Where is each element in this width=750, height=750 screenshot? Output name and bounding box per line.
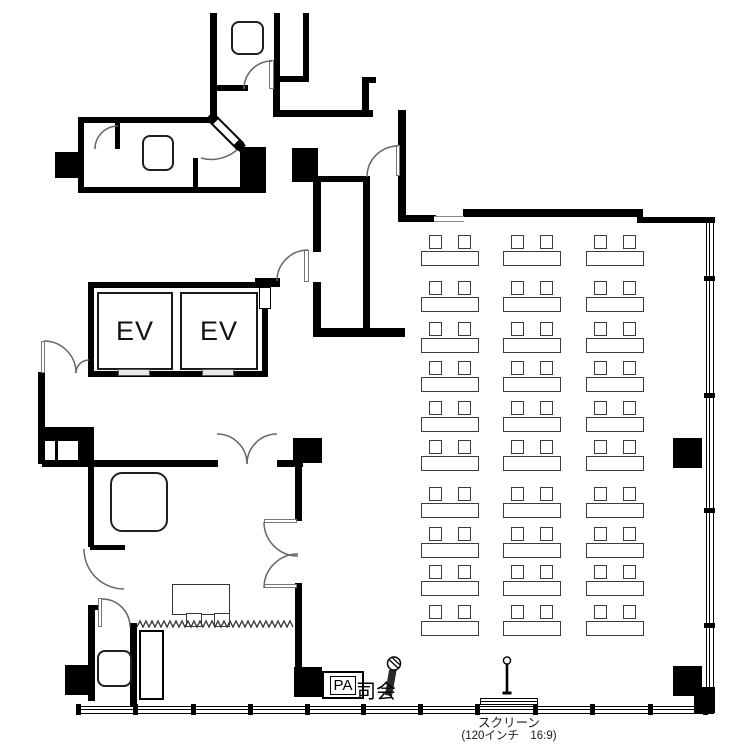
female-restroom-sign [231,21,264,55]
chair [429,401,442,415]
door-arc [367,146,398,177]
chair [511,361,524,375]
chair [458,361,471,375]
wall-segment [55,152,78,178]
chair [458,527,471,541]
door-leaf [41,341,45,373]
chair [511,605,524,619]
chair [511,322,524,336]
chair [594,281,607,295]
operator-chair [186,613,202,627]
desk [586,621,644,636]
desk [503,251,561,266]
chair [458,605,471,619]
wall-segment [363,176,370,337]
door-leaf [269,60,274,89]
desk [503,543,561,558]
moderator-label: 司会 [356,675,396,704]
wall-segment [273,110,373,117]
wall-segment [398,215,436,222]
chair [623,605,636,619]
door-leaf [396,145,400,176]
elevator-1: EV [97,292,173,370]
desk [503,377,561,392]
desk [586,581,644,596]
chair [458,281,471,295]
window-mullion [305,704,310,715]
wall-segment [88,282,268,288]
wall-segment [42,460,218,467]
mic-stand-icon [503,657,512,695]
chair [623,361,636,375]
desk [586,543,644,558]
desk [503,581,561,596]
chair [540,235,553,249]
door-arc [102,599,130,627]
chair [458,487,471,501]
wall-segment [673,438,702,468]
desk [421,377,479,392]
chair [511,527,524,541]
window-mullion [533,704,538,715]
window-mullion [475,704,480,715]
wall-segment [193,158,198,192]
door-arc [201,147,240,159]
desk [586,377,644,392]
wall-segment [215,85,248,91]
window-mullion [248,704,253,715]
desk [586,503,644,518]
chair [594,440,607,454]
chair [540,281,553,295]
chair [623,565,636,579]
chair [458,440,471,454]
chair [429,527,442,541]
wall-segment [362,77,369,116]
desk [421,543,479,558]
chair [623,235,636,249]
chair [623,322,636,336]
window-mullion [590,704,595,715]
desk [503,417,561,432]
window-mullion [704,393,715,398]
chair [540,322,553,336]
chair [623,401,636,415]
chair [540,605,553,619]
desk [586,251,644,266]
desk [503,621,561,636]
chair [429,605,442,619]
window-wall-right-midline [709,223,710,708]
wall-segment [293,438,322,463]
chair [429,322,442,336]
chair [458,565,471,579]
chair [458,322,471,336]
chair [429,487,442,501]
smoking-area-sign [97,650,132,687]
door-arc [264,554,298,588]
operator-table [172,584,230,615]
chair [511,565,524,579]
desk [586,417,644,432]
wall-segment [65,665,93,695]
elevator-2-label: EV [200,316,238,347]
wall-segment [295,467,302,521]
chair [540,440,553,454]
chair [594,361,607,375]
elevator-2: EV [180,292,258,370]
elevator-2-door [202,369,234,376]
desk [503,456,561,471]
chair [623,281,636,295]
wall-segment [90,545,125,550]
window-wall-bottom-midline [78,709,714,710]
wall-segment [88,467,94,547]
pa-label: PA [330,676,357,695]
chair [429,281,442,295]
desk [421,456,479,471]
chair [594,235,607,249]
wall-inset [45,441,55,460]
window-mullion [76,704,81,715]
door-arc [44,341,76,373]
wall-segment [313,176,321,252]
screen-spec: (120インチ 16:9) [429,730,589,743]
wall-inset [58,441,78,460]
door-leaf [98,598,102,627]
wall-segment [295,583,302,668]
wall-segment [240,147,266,193]
chair [594,322,607,336]
desk [503,338,561,353]
chair [594,401,607,415]
wall-segment [210,13,217,122]
chair [623,527,636,541]
chair [540,565,553,579]
chair [540,361,553,375]
wall-segment [274,13,280,82]
chair [429,235,442,249]
chair [429,361,442,375]
window-wall-bottom [78,706,714,714]
pilaster [259,287,271,309]
chair [511,487,524,501]
screen-title: スクリーン [429,716,589,730]
male-restroom-sign [142,135,174,171]
window-mullion [704,623,715,628]
window-mullion [703,704,708,715]
chair [429,565,442,579]
window-mullion [704,508,715,513]
desk [421,338,479,353]
door-arc [264,522,298,556]
chair [511,281,524,295]
door-arc [217,434,247,464]
wall-segment [313,328,405,337]
door-leaf [264,584,297,588]
wall-segment [88,371,268,377]
door-arc [244,61,272,89]
window-mullion [704,276,715,281]
window-mullion [361,704,366,715]
door-arc [247,434,277,464]
chair [458,401,471,415]
chair [594,527,607,541]
desk [421,621,479,636]
desk [421,297,479,312]
wall-segment [78,187,245,193]
chair [623,440,636,454]
chair [540,527,553,541]
wall-opening [434,216,464,222]
closet [139,630,164,700]
wall-segment [88,282,94,377]
chair [623,487,636,501]
chair [594,565,607,579]
desk [421,251,479,266]
door-leaf [304,250,309,282]
wall-segment [78,117,215,123]
desk [421,503,479,518]
chair [594,605,607,619]
operator-chair [214,613,230,627]
desk [586,338,644,353]
window-mullion [133,704,138,715]
floor-plan: EV EV PA 司会 スクリーン (120インチ 16:9) [0,0,750,750]
elevator-1-door [118,369,150,376]
luggage-cloakroom-sign [110,472,168,532]
elevator-1-label: EV [116,316,154,347]
desk [503,503,561,518]
desk [503,297,561,312]
chair [429,440,442,454]
desk [421,581,479,596]
window-mullion [191,704,196,715]
wall-segment [294,667,322,697]
chair [511,401,524,415]
desk [586,456,644,471]
chair [458,235,471,249]
chair [511,440,524,454]
chair [540,401,553,415]
chair [540,487,553,501]
wall-segment [78,117,84,193]
window-wall-right [706,223,714,708]
wall-segment [115,121,120,149]
door-leaf [264,519,297,523]
wall-segment [637,217,715,223]
desk [586,297,644,312]
wall-segment [303,13,309,82]
screen-caption: スクリーン (120インチ 16:9) [429,716,589,743]
projection-screen [480,698,538,705]
window-mullion [648,704,653,715]
chair [594,487,607,501]
door-arc [84,549,124,589]
window-mullion [418,704,423,715]
wall-segment [463,209,639,217]
chair [511,235,524,249]
desk [421,417,479,432]
